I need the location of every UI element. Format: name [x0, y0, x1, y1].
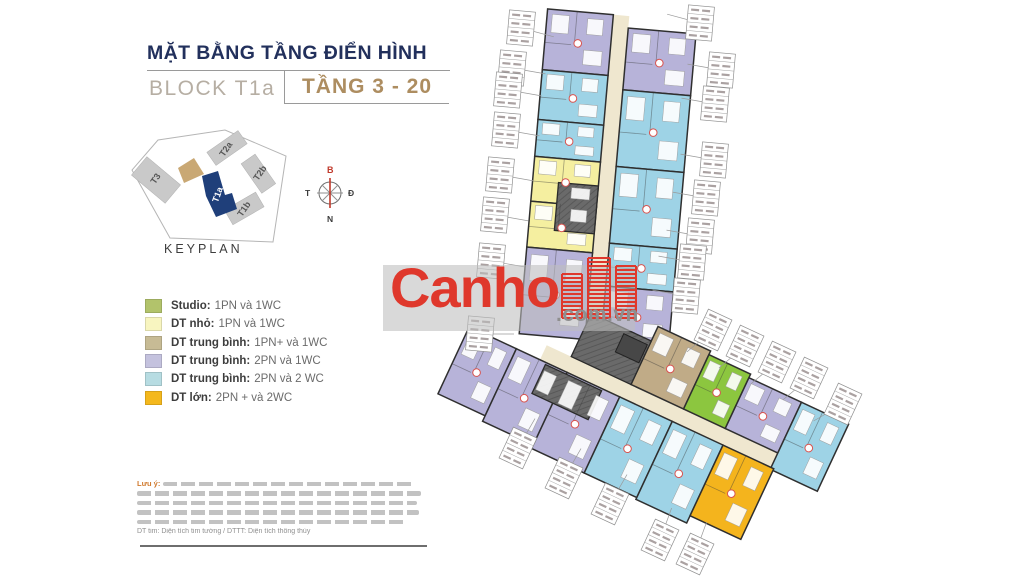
furniture [662, 101, 680, 122]
unit-label-box [641, 519, 679, 561]
compass-south: N [327, 214, 333, 224]
unit-number-badge [637, 264, 645, 272]
legend-desc: 2PN + và 2WC [216, 392, 292, 404]
legend-label: DT nhỏ: [171, 318, 214, 330]
furniture [578, 127, 595, 138]
furniture [664, 70, 684, 86]
disclaimer-line [137, 498, 427, 508]
unit-number-badge [565, 137, 573, 145]
legend-swatch [145, 336, 162, 350]
compass-west: T [305, 188, 311, 198]
legend-swatch [145, 372, 162, 386]
block-label: BLOCK T1a [149, 77, 275, 101]
floor-range-label: TẦNG 3 - 20 [302, 75, 432, 99]
unit-label-box [700, 142, 729, 178]
furniture [651, 218, 672, 238]
furniture [581, 78, 598, 92]
unit-label-box [758, 341, 796, 383]
unit-label-box [694, 309, 732, 351]
unit-number-badge [561, 178, 569, 186]
legend-desc: 2PN và 1WC [254, 355, 320, 367]
furniture [656, 178, 674, 199]
furniture [646, 295, 664, 311]
compass: B Đ N T [305, 165, 354, 224]
unit-label-box [678, 244, 707, 280]
legend-label: Studio: [171, 300, 211, 312]
keyplan: T3 T2a T2b T1b T1a KEYPLAN B Đ N T [118, 126, 370, 278]
disclaimer-label: Lưu ý: [137, 479, 160, 488]
legend-item: DT trung bình: 2PN và 1WC [145, 352, 327, 370]
page: Canho .com.vn MẶT BẰNG TẦNG ĐIỂN HÌNH BL… [0, 0, 1024, 576]
disclaimer-line: Lưu ý: [137, 479, 427, 489]
furniture [546, 74, 564, 90]
watermark-domain: .com.vn [556, 303, 639, 327]
legend-label: DT trung bình: [171, 373, 250, 385]
legend-label: DT trung bình: [171, 337, 250, 349]
furniture [582, 50, 602, 66]
furniture [571, 188, 590, 200]
keyplan-block-wedge [178, 158, 204, 183]
unit-label-box [676, 533, 714, 575]
furniture [551, 14, 570, 34]
legend-swatch [145, 354, 162, 368]
compass-east: Đ [348, 188, 354, 198]
furniture [619, 173, 639, 198]
unit-label-box [507, 10, 536, 46]
legend-item: DT trung bình: 1PN+ và 1WC [145, 334, 327, 352]
legend-label: DT trung bình: [171, 355, 250, 367]
furniture [570, 209, 587, 222]
unit-number-badge [557, 224, 565, 232]
furniture [658, 141, 679, 161]
legend: Studio: 1PN và 1WC DT nhỏ: 1PN và 1WC DT… [145, 297, 327, 407]
furniture [574, 164, 591, 177]
disclaimer: Lưu ý: DT tim: Diện tích tim tường / DTT… [137, 479, 427, 535]
legend-swatch [145, 299, 162, 313]
unit-label-box [494, 72, 523, 108]
furniture [632, 33, 651, 53]
unit-label-box [701, 86, 730, 122]
disclaimer-line [137, 508, 427, 518]
furniture [668, 38, 686, 55]
furniture [575, 146, 594, 156]
unit-label-box [686, 5, 715, 41]
unit-label-box [726, 325, 764, 367]
keyplan-caption: KEYPLAN [164, 242, 243, 256]
furniture [578, 104, 597, 118]
disclaimer-line [137, 489, 427, 499]
furniture [567, 233, 586, 246]
legend-label: DT lớn: [171, 392, 212, 404]
unit-label-box [707, 52, 736, 88]
disclaimer-line [137, 517, 427, 527]
legend-desc: 2PN và 2 WC [254, 373, 324, 385]
unit-label-box [672, 278, 701, 314]
unit-label-box [492, 112, 521, 148]
unit-label-box [790, 357, 828, 399]
disclaimer-text-line [163, 482, 415, 487]
unit-number-badge [642, 205, 650, 213]
unit-number-badge [574, 39, 582, 47]
legend-item: DT nhỏ: 1PN và 1WC [145, 315, 327, 333]
compass-north: B [327, 165, 334, 175]
legend-item: DT trung bình: 2PN và 2 WC [145, 370, 327, 388]
unit-number-badge [655, 59, 663, 67]
floor-range-box: TẦNG 3 - 20 [284, 71, 449, 104]
watermark-brand: Canho [390, 260, 559, 316]
legend-desc: 1PN và 1WC [218, 318, 284, 330]
legend-item: DT lớn: 2PN + và 2WC [145, 388, 327, 406]
page-title: MẶT BẰNG TẦNG ĐIỂN HÌNH [147, 42, 427, 65]
unit-number-badge [569, 94, 577, 102]
disclaimer-note: DT tim: Diện tích tim tường / DTTT: Diện… [137, 528, 427, 535]
footer-divider [140, 545, 427, 547]
legend-desc: 1PN và 1WC [215, 300, 281, 312]
legend-desc: 1PN+ và 1WC [254, 337, 327, 349]
furniture [626, 96, 646, 121]
unit-number-badge [649, 129, 657, 137]
unit-label-box [486, 157, 515, 193]
unit-label-box [481, 197, 510, 233]
legend-swatch [145, 317, 162, 331]
legend-item: Studio: 1PN và 1WC [145, 297, 327, 315]
furniture [586, 19, 603, 36]
furniture [542, 123, 560, 136]
legend-swatch [145, 391, 162, 405]
furniture [538, 160, 556, 175]
unit-label-box [692, 180, 721, 216]
furniture [535, 205, 553, 220]
furniture [647, 273, 667, 285]
